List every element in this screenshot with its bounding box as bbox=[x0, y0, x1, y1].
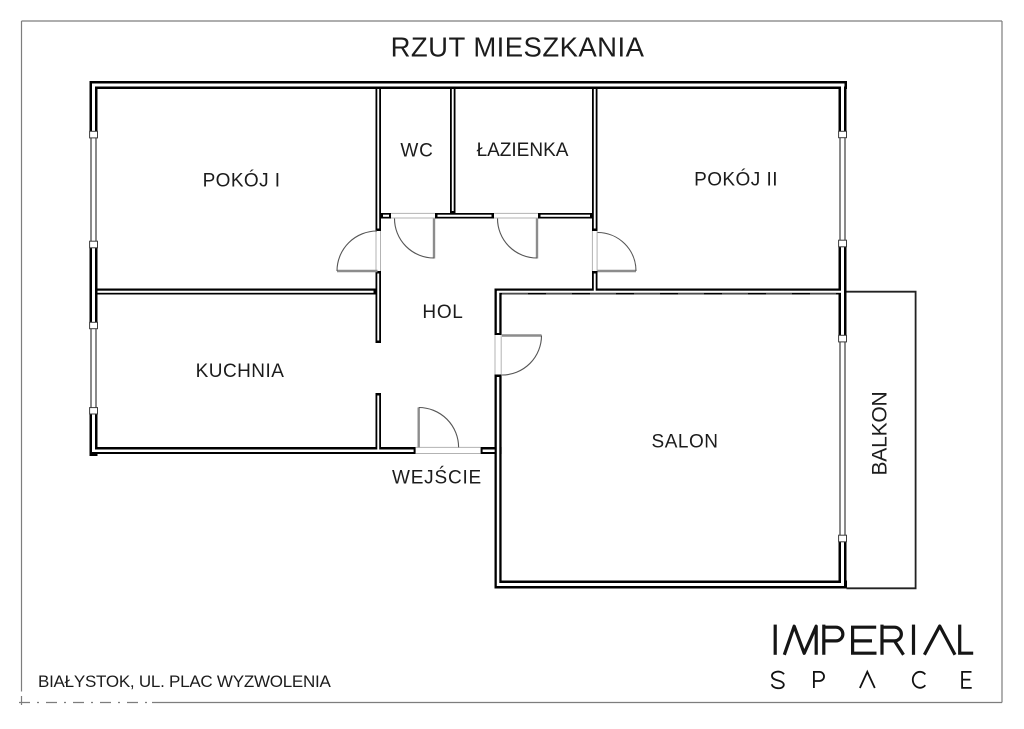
svg-text:POKÓJ I: POKÓJ I bbox=[203, 170, 281, 192]
svg-text:ŁAZIENKA: ŁAZIENKA bbox=[477, 140, 569, 161]
svg-text:WEJŚCIE: WEJŚCIE bbox=[392, 467, 482, 489]
svg-text:HOL: HOL bbox=[422, 302, 463, 323]
svg-text:BIAŁYSTOK, UL. PLAC WYZWOLENIA: BIAŁYSTOK, UL. PLAC WYZWOLENIA bbox=[38, 672, 332, 691]
svg-text:RZUT MIESZKANIA: RZUT MIESZKANIA bbox=[391, 32, 645, 63]
svg-text:BALKON: BALKON bbox=[869, 392, 892, 476]
svg-text:KUCHNIA: KUCHNIA bbox=[196, 361, 285, 382]
svg-text:POKÓJ II: POKÓJ II bbox=[694, 169, 778, 191]
svg-text:WC: WC bbox=[400, 141, 433, 162]
svg-text:SALON: SALON bbox=[652, 432, 719, 453]
